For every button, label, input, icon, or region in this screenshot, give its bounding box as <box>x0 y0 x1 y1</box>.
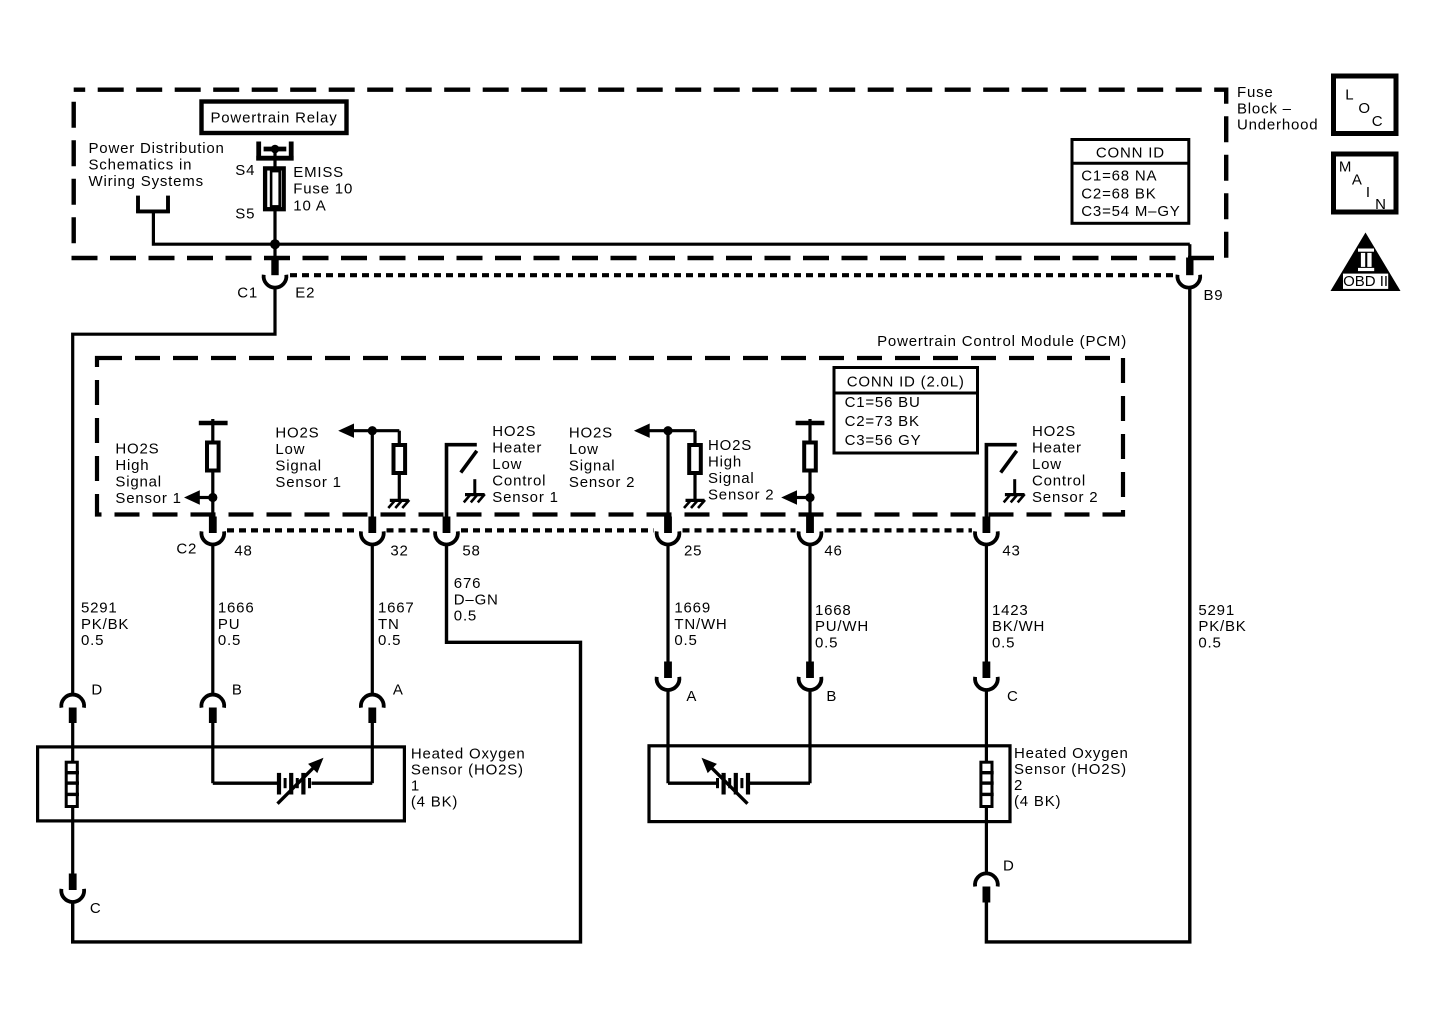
svg-text:C: C <box>90 900 102 917</box>
svg-text:25: 25 <box>684 543 702 560</box>
svg-text:Fuse 10: Fuse 10 <box>293 181 353 198</box>
svg-text:0.5: 0.5 <box>815 634 838 651</box>
svg-text:HO2S: HO2S <box>708 437 752 454</box>
svg-text:Signal: Signal <box>569 458 616 475</box>
svg-text:676: 676 <box>454 575 481 592</box>
svg-text:Sensor 1: Sensor 1 <box>275 474 341 491</box>
svg-text:(4 BK): (4 BK) <box>411 794 458 811</box>
svg-text:Low: Low <box>492 456 522 473</box>
svg-text:0.5: 0.5 <box>378 632 401 649</box>
svg-text:High: High <box>115 457 149 474</box>
svg-text:Powertrain Control Module (PCM: Powertrain Control Module (PCM) <box>877 333 1127 350</box>
svg-text:PU/WH: PU/WH <box>815 618 869 635</box>
svg-text:43: 43 <box>1002 543 1020 560</box>
svg-text:C1: C1 <box>237 285 258 302</box>
svg-text:C: C <box>1372 113 1384 130</box>
svg-text:5291: 5291 <box>81 600 118 617</box>
svg-text:Heated Oxygen: Heated Oxygen <box>411 746 526 763</box>
svg-text:Sensor 2: Sensor 2 <box>569 474 635 491</box>
svg-text:1669: 1669 <box>674 600 711 617</box>
svg-text:0.5: 0.5 <box>81 632 104 649</box>
svg-text:CONN ID (2.0L): CONN ID (2.0L) <box>847 374 965 391</box>
svg-text:Low: Low <box>275 441 305 458</box>
svg-text:OBD II: OBD II <box>1343 273 1388 290</box>
svg-text:Sensor 1: Sensor 1 <box>492 489 558 506</box>
svg-text:Underhood: Underhood <box>1237 117 1318 134</box>
svg-text:1668: 1668 <box>815 602 852 619</box>
svg-text:PU: PU <box>218 616 240 633</box>
svg-text:TN: TN <box>378 616 400 633</box>
svg-text:C1=56 BU: C1=56 BU <box>845 394 921 411</box>
svg-text:EMISS: EMISS <box>293 164 344 181</box>
svg-text:N: N <box>1375 196 1387 213</box>
svg-text:Heater: Heater <box>1032 440 1082 457</box>
svg-text:Sensor 2: Sensor 2 <box>708 486 774 503</box>
svg-text:HO2S: HO2S <box>569 425 613 442</box>
svg-text:Sensor (HO2S): Sensor (HO2S) <box>1014 761 1127 778</box>
svg-text:(4 BK): (4 BK) <box>1014 793 1061 810</box>
svg-text:Signal: Signal <box>275 458 322 475</box>
svg-text:D: D <box>91 682 103 699</box>
svg-text:B9: B9 <box>1204 287 1224 304</box>
svg-text:0.5: 0.5 <box>992 634 1015 651</box>
svg-text:Sensor 1: Sensor 1 <box>115 490 181 507</box>
svg-text:0.5: 0.5 <box>1198 634 1221 651</box>
svg-text:L: L <box>1345 86 1354 103</box>
svg-text:S5: S5 <box>235 206 255 223</box>
svg-text:S4: S4 <box>235 162 255 179</box>
svg-text:M: M <box>1339 159 1352 176</box>
svg-text:2: 2 <box>1014 777 1023 794</box>
svg-text:D–GN: D–GN <box>454 591 499 608</box>
svg-text:5291: 5291 <box>1198 602 1235 619</box>
svg-text:0.5: 0.5 <box>218 632 241 649</box>
svg-text:C2=68 BK: C2=68 BK <box>1081 186 1156 203</box>
svg-text:Control: Control <box>492 473 546 490</box>
svg-text:48: 48 <box>234 543 252 560</box>
svg-text:A: A <box>393 682 404 699</box>
svg-text:Low: Low <box>1032 456 1062 473</box>
svg-text:1423: 1423 <box>992 602 1029 619</box>
svg-text:1: 1 <box>411 778 420 795</box>
svg-text:Sensor 2: Sensor 2 <box>1032 489 1098 506</box>
svg-text:Heated Oxygen: Heated Oxygen <box>1014 745 1129 762</box>
svg-text:A: A <box>686 688 697 705</box>
svg-text:Fuse: Fuse <box>1237 84 1274 101</box>
svg-text:C: C <box>1007 688 1019 705</box>
svg-text:PK/BK: PK/BK <box>1198 618 1246 635</box>
svg-text:32: 32 <box>390 543 408 560</box>
svg-text:HO2S: HO2S <box>275 425 319 442</box>
svg-text:0.5: 0.5 <box>454 608 477 625</box>
svg-text:BK/WH: BK/WH <box>992 618 1045 635</box>
svg-text:HO2S: HO2S <box>1032 423 1076 440</box>
svg-text:D: D <box>1003 858 1015 875</box>
svg-text:Schematics in: Schematics in <box>89 157 193 174</box>
svg-text:B: B <box>826 688 837 705</box>
svg-text:Wiring Systems: Wiring Systems <box>89 173 204 190</box>
svg-text:CONN ID: CONN ID <box>1096 145 1165 162</box>
svg-text:0.5: 0.5 <box>674 632 697 649</box>
svg-text:HO2S: HO2S <box>115 440 159 457</box>
svg-text:C3=54 M–GY: C3=54 M–GY <box>1081 203 1180 220</box>
svg-text:High: High <box>708 453 742 470</box>
svg-text:C1=68 NA: C1=68 NA <box>1081 167 1157 184</box>
svg-text:HO2S: HO2S <box>492 423 536 440</box>
svg-text:C2=73 BK: C2=73 BK <box>845 413 920 430</box>
svg-text:O: O <box>1358 100 1370 117</box>
svg-text:Signal: Signal <box>708 470 755 487</box>
svg-text:TN/WH: TN/WH <box>674 616 727 633</box>
svg-text:Signal: Signal <box>115 473 161 490</box>
svg-text:I: I <box>1366 184 1371 201</box>
svg-text:58: 58 <box>462 543 480 560</box>
svg-text:Power Distribution: Power Distribution <box>89 140 225 157</box>
svg-text:1667: 1667 <box>378 600 415 617</box>
svg-text:Heater: Heater <box>492 440 542 457</box>
svg-text:Block –: Block – <box>1237 100 1292 117</box>
svg-text:PK/BK: PK/BK <box>81 616 129 633</box>
svg-text:10 A: 10 A <box>293 197 326 214</box>
svg-text:A: A <box>1352 171 1363 188</box>
svg-text:Powertrain Relay: Powertrain Relay <box>210 110 337 127</box>
svg-text:Low: Low <box>569 441 599 458</box>
svg-text:C2: C2 <box>176 541 197 558</box>
svg-text:Control: Control <box>1032 473 1086 490</box>
svg-text:C3=56 GY: C3=56 GY <box>845 432 922 449</box>
svg-text:B: B <box>232 682 243 699</box>
svg-text:Sensor (HO2S): Sensor (HO2S) <box>411 762 524 779</box>
svg-text:46: 46 <box>824 543 842 560</box>
svg-text:1666: 1666 <box>218 600 255 617</box>
svg-text:E2: E2 <box>295 285 315 302</box>
